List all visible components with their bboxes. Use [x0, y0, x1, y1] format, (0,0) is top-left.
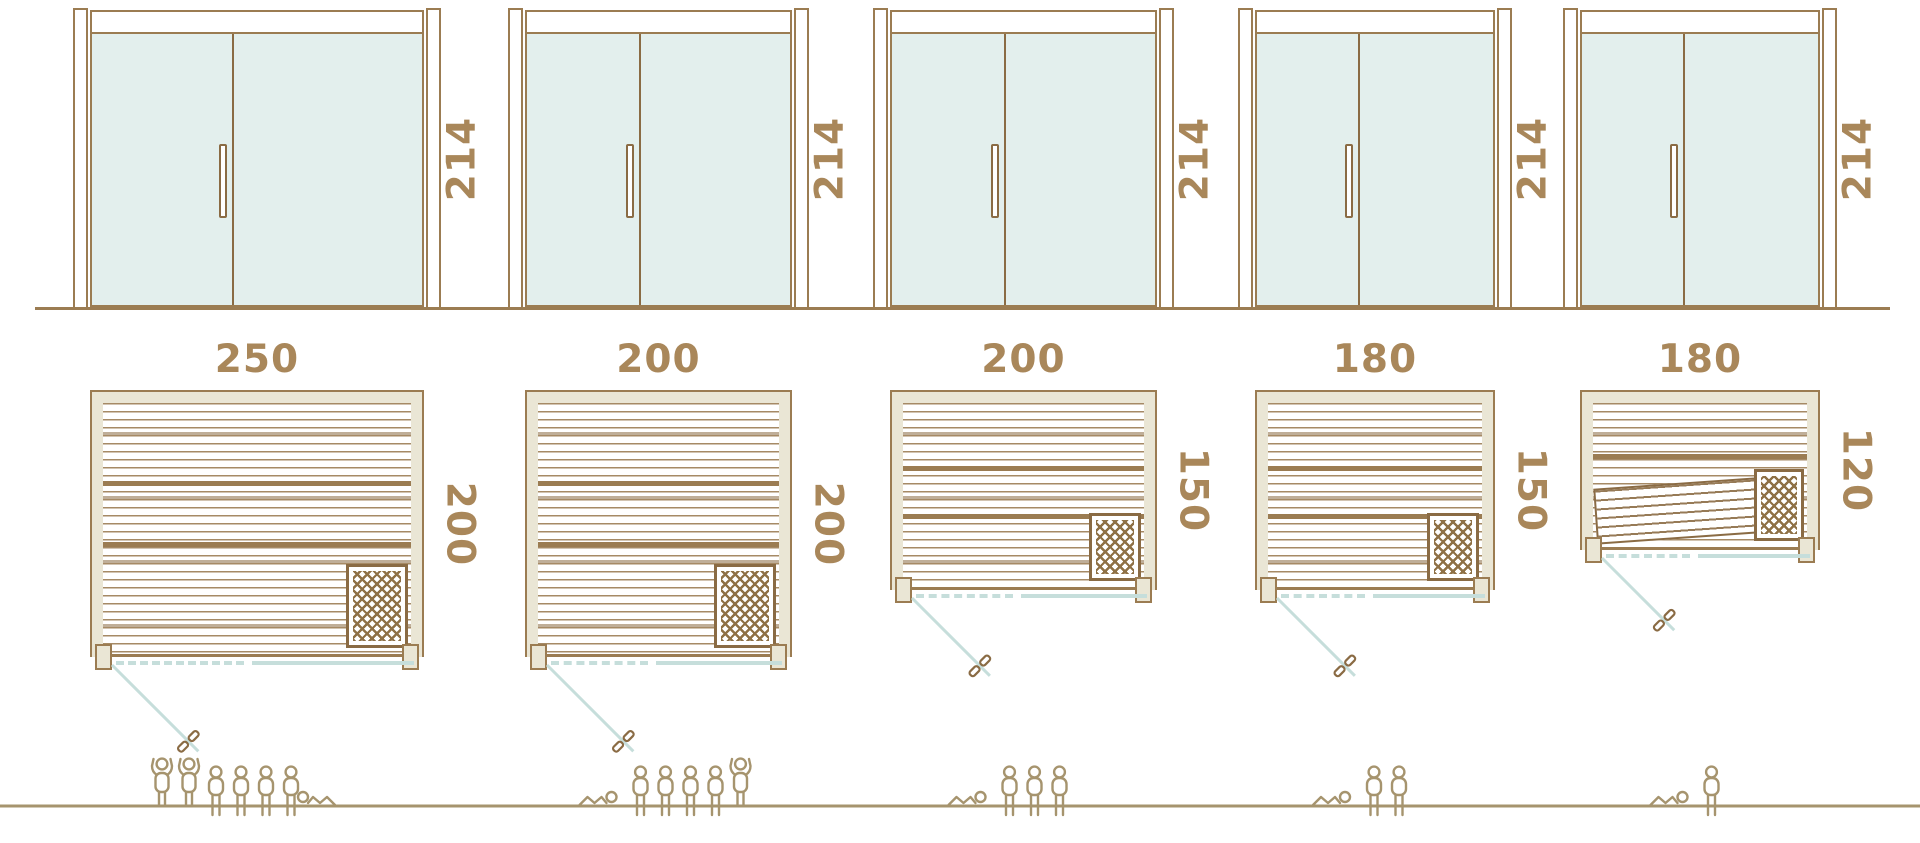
door-divider [1683, 34, 1685, 305]
person-seated-icon [1053, 767, 1067, 815]
plan-width-label: 250 [215, 340, 299, 379]
plan-width-label: 200 [981, 340, 1065, 379]
sauna-plan-view [890, 390, 1157, 590]
bench-slats [103, 403, 411, 657]
bench-edge-line [538, 481, 779, 486]
heater-grid-pattern [1096, 520, 1134, 574]
bench-edge-line [538, 542, 779, 547]
door-swing-diagram [890, 590, 1130, 720]
plan-width-label: 200 [616, 340, 700, 379]
person-standing-icon [152, 759, 172, 805]
door-handle-icon [991, 144, 999, 218]
heater-icon [1754, 469, 1804, 541]
person-seated-icon [684, 767, 698, 815]
bench-edge-line [103, 542, 411, 547]
door-elevation [1580, 10, 1820, 308]
person-reclining-icon [949, 792, 986, 805]
person-seated-icon [259, 767, 273, 815]
door-elevation [1255, 10, 1495, 308]
door-handle-icon [1670, 144, 1678, 218]
door-ground-line [835, 307, 1227, 310]
bench-edge-line [903, 466, 1144, 471]
door-elevation [525, 10, 792, 308]
capacity-people-group [949, 767, 1067, 815]
door-swing-diagram [1580, 550, 1820, 680]
door-handle-icon [626, 144, 634, 218]
plan-corner-post-right [770, 644, 787, 670]
door-side-post-left [508, 8, 523, 310]
person-reclining-icon [1651, 792, 1688, 805]
heater-icon [1089, 513, 1141, 581]
door-ground-line [470, 307, 862, 310]
plan-depth-label: 200 [441, 481, 480, 565]
heater-grid-pattern [1434, 520, 1472, 574]
door-divider [1004, 34, 1006, 305]
person-seated-icon [1367, 767, 1381, 815]
plan-width-label: 180 [1658, 340, 1742, 379]
door-height-label: 214 [1176, 117, 1215, 201]
heater-grid-pattern [353, 571, 401, 641]
person-seated-icon [1705, 767, 1719, 815]
door-swing-diagram [1255, 590, 1495, 720]
person-reclining-icon [580, 792, 617, 805]
door-swing-line [547, 665, 633, 751]
plan-corner-post-right [402, 644, 419, 670]
door-ground-line [1525, 307, 1890, 310]
plan-corner-post-right [1135, 577, 1152, 603]
door-handle-icon [1345, 144, 1353, 218]
door-top-frame [1255, 10, 1495, 34]
capacity-row [0, 740, 1920, 843]
door-ground-line [1200, 307, 1565, 310]
bench-slats [1268, 403, 1482, 590]
door-swing-line [1277, 598, 1355, 676]
door-ground-line [35, 307, 494, 310]
door-divider [1358, 34, 1360, 305]
heater-icon [1427, 513, 1479, 581]
sauna-plan-view [525, 390, 792, 657]
bench-edge-line [1593, 454, 1807, 459]
door-height-label: 214 [1514, 117, 1553, 201]
capacity-people-group [1651, 767, 1719, 815]
door-top-frame [90, 10, 424, 34]
door-swing-line [912, 598, 990, 676]
door-swing-line [112, 665, 198, 751]
plan-depth-label: 150 [1512, 448, 1551, 532]
door-top-frame [1580, 10, 1820, 34]
tilted-bench [1593, 477, 1760, 544]
sauna-plan-view [1255, 390, 1495, 590]
door-top-frame [890, 10, 1157, 34]
person-reclining-icon [1313, 792, 1350, 805]
plan-depth-label: 150 [1174, 448, 1213, 532]
person-seated-icon [659, 767, 673, 815]
person-seated-icon [209, 767, 223, 815]
door-side-post-left [1238, 8, 1253, 310]
person-seated-icon [234, 767, 248, 815]
person-standing-icon [731, 759, 751, 805]
plan-width-label: 180 [1333, 340, 1417, 379]
door-height-label: 214 [1839, 117, 1878, 201]
heater-grid-pattern [1761, 476, 1797, 534]
bench-slats [1593, 403, 1807, 550]
person-standing-icon [179, 759, 199, 805]
sauna-plan-view [90, 390, 424, 657]
bench-slats [538, 403, 779, 657]
plan-depth-label: 120 [1837, 428, 1876, 512]
sauna-plan-view [1580, 390, 1820, 550]
bench-slats [903, 403, 1144, 590]
heater-grid-pattern [721, 571, 769, 641]
door-divider [639, 34, 641, 305]
door-side-post-left [873, 8, 888, 310]
door-height-label: 214 [443, 117, 482, 201]
heater-icon [714, 564, 776, 648]
person-seated-icon [1028, 767, 1042, 815]
heater-icon [346, 564, 408, 648]
door-side-post-left [73, 8, 88, 310]
door-side-post-left [1563, 8, 1578, 310]
sauna-size-diagram: 2142502002142002002142001502141801502141… [0, 0, 1920, 843]
person-seated-icon [1392, 767, 1406, 815]
person-seated-icon [634, 767, 648, 815]
plan-depth-label: 200 [809, 481, 848, 565]
bench-edge-line [103, 481, 411, 486]
person-seated-icon [284, 767, 298, 815]
bench-edge-line [1268, 466, 1482, 471]
door-elevation [90, 10, 424, 308]
door-elevation [890, 10, 1157, 308]
door-height-label: 214 [811, 117, 850, 201]
door-swing-line [1602, 558, 1674, 630]
capacity-people-group [1313, 767, 1406, 815]
door-divider [232, 34, 234, 305]
door-handle-icon [219, 144, 227, 218]
person-seated-icon [709, 767, 723, 815]
person-seated-icon [1003, 767, 1017, 815]
person-reclining-icon [298, 792, 335, 805]
door-top-frame [525, 10, 792, 34]
